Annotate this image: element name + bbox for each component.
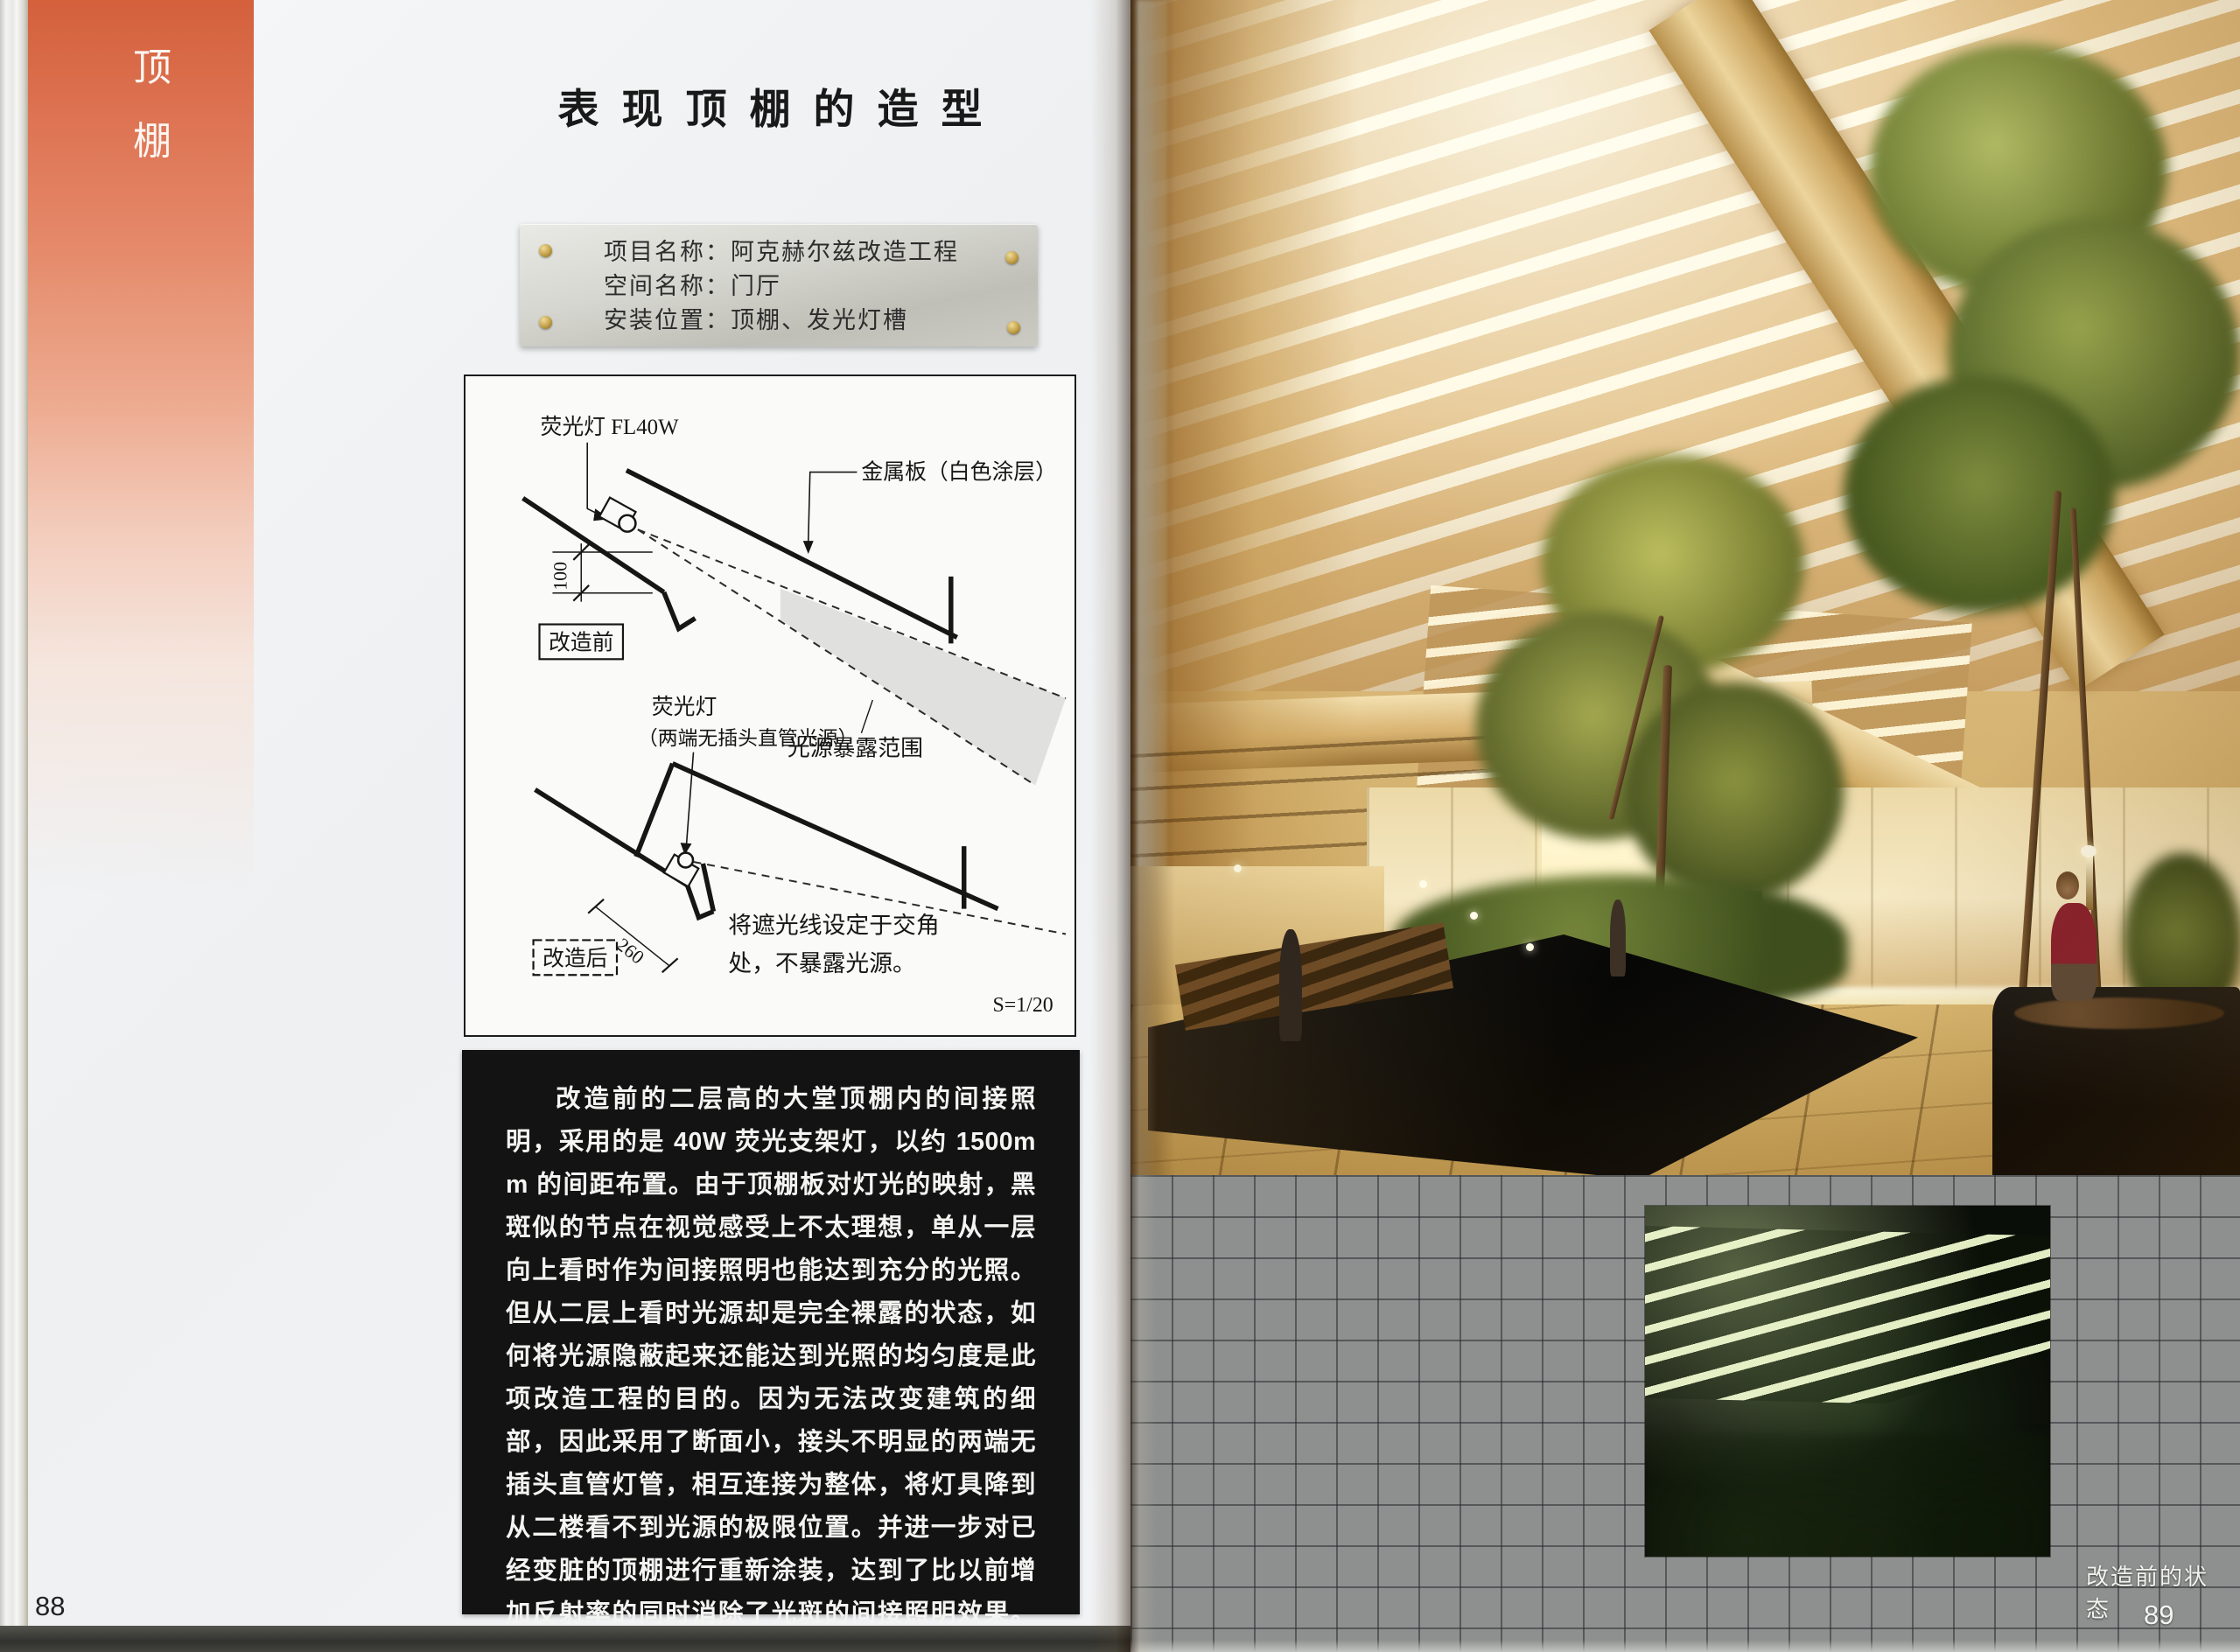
left-page: 顶 棚 表现顶棚的造型 项目名称：阿克赫尔兹改造工程 空间名称：门厅 安装位置：… bbox=[0, 0, 1130, 1652]
space-name-row: 空间名称：门厅 bbox=[604, 269, 959, 304]
diagram-canvas: 荧光灯 FL40W 100 金属板（白色涂层） bbox=[465, 376, 1074, 1035]
leader-line bbox=[861, 700, 872, 733]
fluorescent-lamp-symbol bbox=[678, 853, 693, 868]
screw-icon bbox=[539, 316, 552, 329]
leader-line bbox=[808, 472, 857, 542]
book-bottom-edge bbox=[0, 1626, 1130, 1652]
project-name-row: 项目名称：阿克赫尔兹改造工程 bbox=[604, 235, 959, 269]
right-page: 改造前的状态 89 bbox=[1130, 0, 2240, 1652]
diagram-scale: S=1/20 bbox=[993, 994, 1053, 1017]
dim-tick bbox=[662, 958, 678, 972]
page-number-left: 88 bbox=[35, 1591, 65, 1622]
book-spread: 顶 棚 表现顶棚的造型 项目名称：阿克赫尔兹改造工程 空间名称：门厅 安装位置：… bbox=[0, 0, 2240, 1652]
after-lamp-sublabel: （两端无插头直管光源） bbox=[638, 728, 857, 750]
chapter-sidebar-band: 顶 棚 bbox=[28, 0, 254, 892]
dark-foliage bbox=[1645, 1434, 2050, 1557]
after-dim-text: 260 bbox=[612, 934, 648, 968]
before-lamp-label: 荧光灯 FL40W bbox=[541, 415, 680, 439]
trough-channel-line bbox=[664, 592, 696, 629]
metal-panel-line bbox=[673, 764, 998, 909]
after-note-line2: 处，不暴露光源。 bbox=[728, 950, 916, 976]
page-bottom-edge bbox=[1130, 1640, 2240, 1652]
fluorescent-lamp-symbol bbox=[619, 515, 635, 532]
body-paragraph: 改造前的二层高的大堂顶棚内的间接照明，采用的是 40W 荧光支架灯，以约 150… bbox=[506, 1078, 1036, 1652]
project-info-text: 项目名称：阿克赫尔兹改造工程 空间名称：门厅 安装位置：顶棚、发光灯槽 bbox=[604, 235, 959, 338]
body-text-block: 改造前的二层高的大堂顶棚内的间接照明，采用的是 40W 荧光支架灯，以约 150… bbox=[462, 1050, 1080, 1614]
after-note-line1: 将遮光线设定于交角 bbox=[728, 913, 939, 939]
photo-vignette bbox=[1130, 0, 2240, 1175]
install-location-row: 安装位置：顶棚、发光灯槽 bbox=[604, 304, 959, 338]
lobby-photo bbox=[1130, 0, 2240, 1175]
shield-lip-line bbox=[703, 864, 713, 912]
leader-line bbox=[587, 443, 601, 516]
after-tag: 改造后 bbox=[542, 946, 608, 970]
leader-line bbox=[687, 752, 694, 844]
chapter-char-1: 顶 bbox=[126, 49, 178, 87]
page-number-right: 89 bbox=[2144, 1599, 2173, 1631]
after-lamp-label: 荧光灯 bbox=[652, 695, 717, 719]
before-tag: 改造前 bbox=[549, 630, 614, 654]
lighting-section-diagram: 荧光灯 FL40W 100 金属板（白色涂层） bbox=[464, 374, 1076, 1037]
chapter-char-2: 棚 bbox=[126, 122, 178, 161]
screw-icon bbox=[1007, 321, 1020, 334]
panel-label: 金属板（白色涂层） bbox=[861, 459, 1057, 484]
light-ray-dashed bbox=[638, 529, 1066, 698]
screw-icon bbox=[539, 244, 552, 257]
before-dim-text: 100 bbox=[549, 562, 570, 591]
before-state-photo bbox=[1645, 1206, 2050, 1557]
page-title: 表现顶棚的造型 bbox=[464, 75, 1076, 136]
page-edge-left bbox=[0, 0, 28, 1652]
chapter-label-vertical: 顶 棚 bbox=[126, 49, 178, 161]
arrowhead-icon bbox=[803, 541, 814, 554]
screw-icon bbox=[1005, 251, 1018, 264]
project-info-plate: 项目名称：阿克赫尔兹改造工程 空间名称：门厅 安装位置：顶棚、发光灯槽 bbox=[520, 224, 1038, 346]
panel-left-edge bbox=[636, 764, 673, 857]
